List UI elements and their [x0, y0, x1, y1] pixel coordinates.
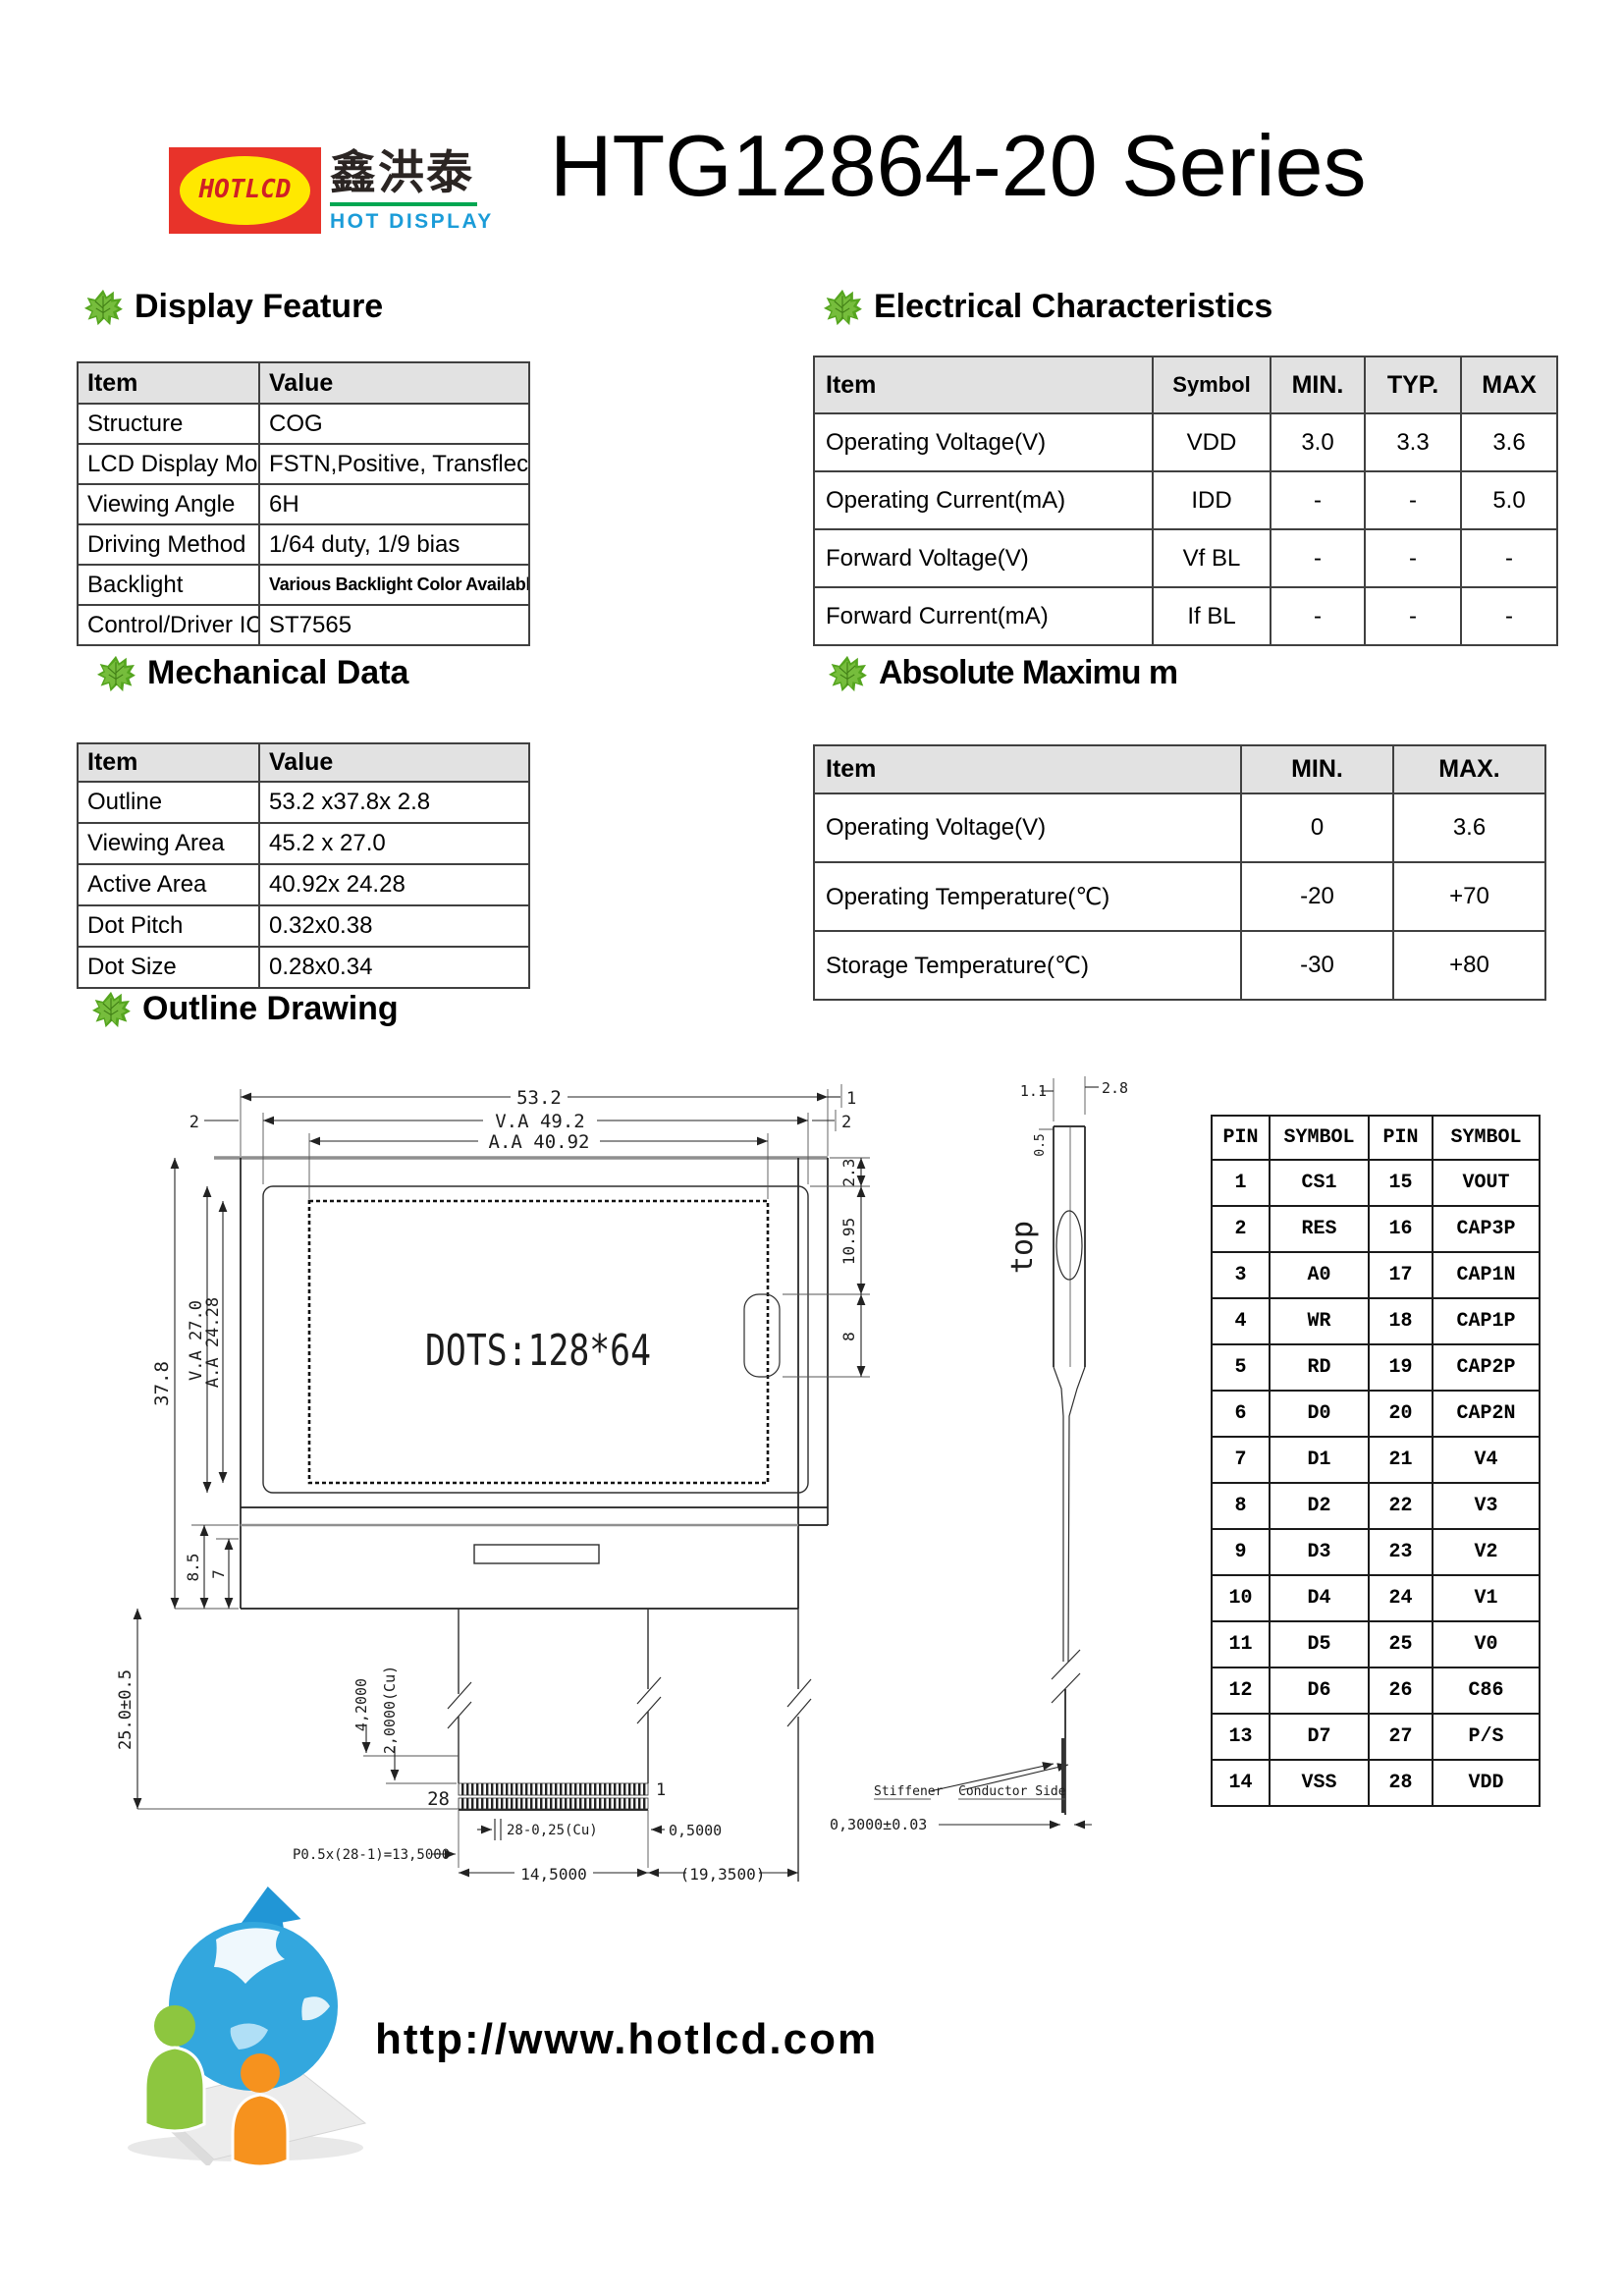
section-header-outline-drawing: Outline Drawing: [91, 990, 399, 1028]
section-header-absolute-maximum: Absolute Maximu m: [828, 654, 1177, 692]
table-row: Dot Pitch0.32x0.38: [78, 905, 529, 947]
dim-pitch: P0.5x(28-1)=13,5000: [293, 1847, 450, 1863]
table-cell: Driving Method: [78, 524, 259, 565]
dim-side-0-5: 0.5: [1033, 1133, 1048, 1156]
front-view: DOTS:128*64: [214, 1158, 828, 1882]
leaf-icon: [83, 289, 123, 326]
table-cell: -: [1271, 471, 1365, 529]
table-cell: -: [1365, 471, 1461, 529]
website-link[interactable]: http://www.hotlcd.com: [375, 2015, 878, 2064]
section-title: Electrical Characteristics: [874, 288, 1272, 326]
absolute-maximum-table: ItemMIN.MAX.Operating Voltage(V)03.6Oper…: [813, 744, 1546, 1001]
screen-dots-label: DOTS:128*64: [425, 1326, 651, 1376]
section-header-display-feature: Display Feature: [83, 288, 383, 326]
table-cell: 5.0: [1461, 471, 1557, 529]
table-cell: Operating Temperature(℃): [814, 862, 1241, 931]
table-cell: -: [1365, 529, 1461, 587]
table-cell: 0.32x0.38: [259, 905, 529, 947]
label-pin-1: 1: [656, 1780, 666, 1800]
label-top-side: top: [1005, 1221, 1040, 1274]
table-cell: 0.28x0.34: [259, 947, 529, 988]
electrical-characteristics-table: ItemSymbolMIN.TYP.MAXOperating Voltage(V…: [813, 355, 1558, 646]
datasheet-page: { "header": { "title": "HTG12864-20 Seri…: [0, 0, 1623, 2296]
dim-right-span: (19,3500): [680, 1865, 766, 1884]
column-header: MIN.: [1271, 356, 1365, 413]
column-header: Item: [78, 362, 259, 404]
table-row: Driving Method1/64 duty, 1/9 bias: [78, 524, 529, 565]
dim-right-gap2: 2: [841, 1113, 851, 1132]
table-cell: Dot Pitch: [78, 905, 259, 947]
dim-edge-2-3: 2.3: [839, 1159, 858, 1187]
table-cell: Active Area: [78, 864, 259, 905]
dim-va-width: V.A 49.2: [495, 1111, 585, 1132]
table-cell: 53.2 x37.8x 2.8: [259, 782, 529, 823]
table-cell: +80: [1393, 931, 1545, 1000]
column-header: Item: [814, 356, 1153, 413]
table-cell: Structure: [78, 404, 259, 444]
header-row: ItemMIN.MAX.: [814, 745, 1545, 793]
leaf-icon: [91, 991, 131, 1028]
dim-total-width: 53.2: [516, 1087, 562, 1109]
outline-drawing-canvas: DOTS:128*64: [98, 1061, 1571, 1905]
dim-fpc-span: 14,5000: [520, 1865, 586, 1884]
table-row: Control/Driver ICST7565: [78, 605, 529, 645]
table-cell: +70: [1393, 862, 1545, 931]
table-cell: Forward Voltage(V): [814, 529, 1153, 587]
table-cell: 1/64 duty, 1/9 bias: [259, 524, 529, 565]
table-cell: IDD: [1153, 471, 1271, 529]
header-row: ItemValue: [78, 362, 529, 404]
dim-left-gap: 2: [189, 1113, 199, 1132]
dim-fpc-length: 25.0±0.5: [116, 1669, 135, 1750]
table-cell: -: [1461, 529, 1557, 587]
section-title: Display Feature: [135, 288, 383, 326]
table-cell: If BL: [1153, 587, 1271, 645]
column-header: Value: [259, 362, 529, 404]
table-cell: Dot Size: [78, 947, 259, 988]
table-cell: 0: [1241, 793, 1393, 862]
table-cell: -30: [1241, 931, 1393, 1000]
column-header: MAX: [1461, 356, 1557, 413]
column-header: MIN.: [1241, 745, 1393, 793]
table-cell: LCD Display Mode: [78, 444, 259, 484]
table-row: BacklightVarious Backlight Color Availab…: [78, 565, 529, 605]
column-header: Value: [259, 743, 529, 782]
table-cell: Forward Current(mA): [814, 587, 1153, 645]
table-row: Forward Voltage(V)Vf BL---: [814, 529, 1557, 587]
label-pin-28: 28: [427, 1788, 450, 1810]
header-row: ItemSymbolMIN.TYP.MAX: [814, 356, 1557, 413]
table-row: Operating Temperature(℃)-20+70: [814, 862, 1545, 931]
stiffener-strip: [1061, 1738, 1066, 1813]
display-feature-table: ItemValueStructureCOGLCD Display ModeFST…: [77, 361, 530, 646]
table-cell: Operating Voltage(V): [814, 413, 1153, 471]
dim-total-height: 37.8: [151, 1361, 173, 1406]
dim-end-gap: 0,5000: [669, 1822, 722, 1839]
leaf-icon: [828, 655, 867, 692]
dim-edge-8: 8: [839, 1332, 858, 1341]
table-cell: -: [1365, 587, 1461, 645]
label-conductor-side: Conductor Side: [958, 1784, 1066, 1799]
table-cell: 3.6: [1461, 413, 1557, 471]
dim-side-2-8: 2.8: [1102, 1079, 1128, 1097]
leaf-icon: [823, 289, 862, 326]
table-cell: 40.92x 24.28: [259, 864, 529, 905]
page-title: HTG12864-20 Series: [550, 116, 1367, 216]
column-header: MAX.: [1393, 745, 1545, 793]
dim-pin-width: 28-0,25(Cu): [507, 1823, 598, 1838]
table-cell: -: [1461, 587, 1557, 645]
table-cell: 3.6: [1393, 793, 1545, 862]
dim-thickness: 0,3000±0.03: [830, 1816, 927, 1833]
table-row: Active Area40.92x 24.28: [78, 864, 529, 905]
mechanical-data-table: ItemValueOutline53.2 x37.8x 2.8Viewing A…: [77, 742, 530, 989]
dim-lower-7: 7: [209, 1569, 228, 1579]
table-cell: Backlight: [78, 565, 259, 605]
dim-edge-10-95: 10.95: [839, 1218, 858, 1265]
table-cell: Vf BL: [1153, 529, 1271, 587]
dim-aa-height: A.A 24.28: [203, 1297, 223, 1388]
table-cell: 45.2 x 27.0: [259, 823, 529, 864]
table-cell: Viewing Area: [78, 823, 259, 864]
table-row: Dot Size0.28x0.34: [78, 947, 529, 988]
dimension-lines: [137, 1087, 1099, 1873]
table-row: Operating Current(mA)IDD--5.0: [814, 471, 1557, 529]
table-cell: Storage Temperature(℃): [814, 931, 1241, 1000]
dim-side-1-1: 1.1: [1020, 1082, 1047, 1100]
table-cell: Operating Current(mA): [814, 471, 1153, 529]
table-cell: ST7565: [259, 605, 529, 645]
section-header-electrical: Electrical Characteristics: [823, 288, 1272, 326]
section-title: Mechanical Data: [147, 654, 408, 692]
logo-green-underline: [330, 202, 477, 206]
table-cell: 6H: [259, 484, 529, 524]
table-cell: VDD: [1153, 413, 1271, 471]
label-stiffener: Stiffener: [874, 1784, 944, 1799]
logo-chinese-text: 鑫洪泰: [330, 148, 494, 199]
column-header: TYP.: [1365, 356, 1461, 413]
column-header: Item: [814, 745, 1241, 793]
table-row: Forward Current(mA)If BL---: [814, 587, 1557, 645]
table-cell: -: [1271, 529, 1365, 587]
table-cell: Operating Voltage(V): [814, 793, 1241, 862]
leaf-icon: [96, 655, 135, 692]
header-row: ItemValue: [78, 743, 529, 782]
table-row: LCD Display ModeFSTN,Positive, Transflec…: [78, 444, 529, 484]
column-header: Item: [78, 743, 259, 782]
table-cell: Outline: [78, 782, 259, 823]
table-row: Operating Voltage(V)03.6: [814, 793, 1545, 862]
table-cell: 3.3: [1365, 413, 1461, 471]
company-logo: HOTLCD 鑫洪泰 HOT DISPLAY: [169, 147, 494, 234]
table-cell: Viewing Angle: [78, 484, 259, 524]
table-cell: -: [1271, 587, 1365, 645]
table-row: Operating Voltage(V)VDD3.03.33.6: [814, 413, 1557, 471]
logo-badge-text: HOTLCD: [169, 175, 321, 204]
extension-lines: [137, 1076, 1085, 1868]
section-header-mechanical: Mechanical Data: [96, 654, 408, 692]
dim-right-gap1: 1: [846, 1089, 856, 1109]
table-row: Viewing Area45.2 x 27.0: [78, 823, 529, 864]
section-title: Absolute Maximu m: [879, 654, 1177, 692]
column-header: Symbol: [1153, 356, 1271, 413]
table-row: Outline53.2 x37.8x 2.8: [78, 782, 529, 823]
globe-graphic: [93, 1881, 398, 2165]
logo-wordmark: 鑫洪泰 HOT DISPLAY: [330, 147, 494, 234]
dim-lower-8-5: 8.5: [184, 1554, 202, 1582]
table-cell: Various Backlight Color Available: [259, 565, 529, 605]
side-view: [874, 1126, 1085, 1815]
table-cell: -20: [1241, 862, 1393, 931]
table-cell: FSTN,Positive, Transflective: [259, 444, 529, 484]
section-title: Outline Drawing: [142, 990, 399, 1028]
table-cell: 3.0: [1271, 413, 1365, 471]
dim-cu-2-0: 2,0000(Cu): [381, 1666, 399, 1754]
dim-cu-4-2: 4,2000: [352, 1678, 370, 1731]
table-cell: COG: [259, 404, 529, 444]
logo-badge: HOTLCD: [169, 147, 321, 234]
table-row: Viewing Angle6H: [78, 484, 529, 524]
dim-aa-width: A.A 40.92: [489, 1131, 590, 1153]
table-row: Storage Temperature(℃)-30+80: [814, 931, 1545, 1000]
table-row: StructureCOG: [78, 404, 529, 444]
logo-tagline: HOT DISPLAY: [330, 210, 494, 234]
table-cell: Control/Driver IC: [78, 605, 259, 645]
